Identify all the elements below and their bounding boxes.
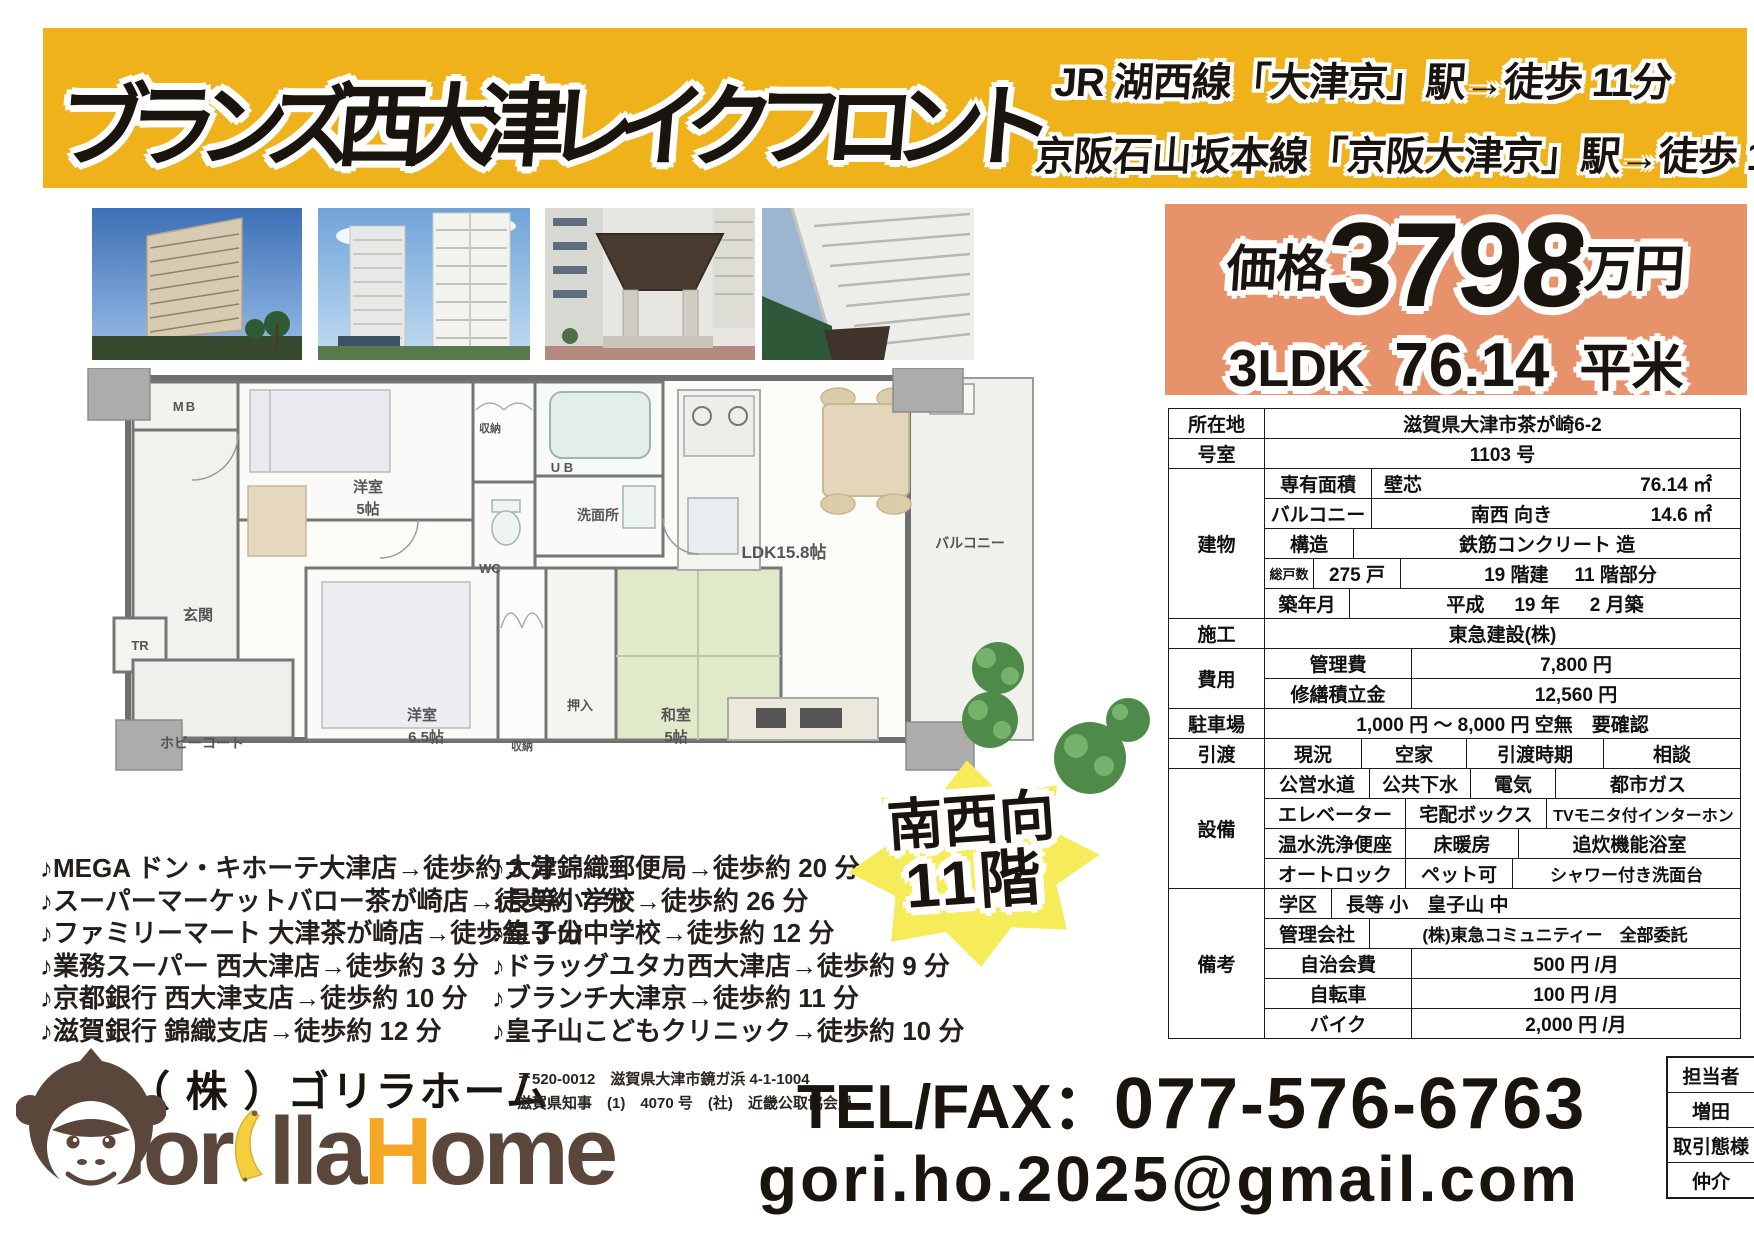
room-label-ub: U B bbox=[551, 460, 573, 475]
built-era: 平成 bbox=[1446, 590, 1484, 617]
built-label: 築年月 bbox=[1265, 589, 1349, 618]
equipment-item: 温水洗浄便座 bbox=[1265, 829, 1405, 858]
equipment-item: 追炊機能浴室 bbox=[1518, 829, 1740, 858]
row-cost-label: 費用 bbox=[1169, 649, 1265, 709]
row-building-label: 建物 bbox=[1169, 469, 1265, 619]
total-units-label: 総戸数 bbox=[1265, 559, 1313, 588]
equipment-item: ペット可 bbox=[1405, 859, 1512, 888]
building-photo-1 bbox=[92, 208, 302, 360]
location-value: 滋賀県大津市茶が崎6-2 bbox=[1265, 409, 1741, 439]
flyer-page: ブランズ西大津レイクフロント JR 湖西線「大津京」駅→徒歩 11分 京阪石山坂… bbox=[0, 0, 1754, 1241]
bicycle-fee-label: 自転車 bbox=[1265, 979, 1411, 1008]
building-photo-4 bbox=[762, 208, 974, 360]
balcony-label: バルコニー bbox=[1265, 499, 1371, 528]
header-banner: ブランズ西大津レイクフロント JR 湖西線「大津京」駅→徒歩 11分 京阪石山坂… bbox=[43, 28, 1747, 188]
wordmark-h: H bbox=[363, 1098, 428, 1205]
room-label-washroom: 洗面所 bbox=[577, 507, 619, 523]
room-label-oshiire: 押入 bbox=[567, 698, 593, 713]
access-line-keihan: 京阪石山坂本線「京阪大津京」駅→徒歩 14分 bbox=[1033, 124, 1754, 182]
price-amount: 3798 bbox=[1323, 206, 1588, 324]
management-company-label: 管理会社 bbox=[1265, 919, 1369, 948]
handover-time-value: 相談 bbox=[1603, 739, 1740, 768]
nearby-item: ♪皇子山こどもクリニック→徒歩約 10 分 bbox=[492, 1015, 964, 1048]
floor-plan: MB 洋室 5帖 収納 U B 洗面所 WC 玄関 TR ホビーコート 洋室 6… bbox=[78, 368, 1150, 798]
room-label-wc: WC bbox=[479, 561, 501, 576]
direction-badge: 南西向 11階 bbox=[841, 751, 1107, 975]
room-label-tr: TR bbox=[131, 638, 149, 653]
total-units-value: 275 戸 bbox=[1313, 559, 1400, 588]
constructor-value: 東急建設(株) bbox=[1265, 619, 1741, 649]
equipment-item: オートロック bbox=[1265, 859, 1405, 888]
row-equipment-label: 設備 bbox=[1169, 769, 1265, 889]
management-company-value: (株)東急コミュニティー 全部委託 bbox=[1369, 919, 1740, 948]
condition-label: 現況 bbox=[1265, 739, 1361, 768]
balcony-direction: 南西 向き bbox=[1371, 499, 1651, 528]
room-label-bedroom1: 洋室 bbox=[353, 478, 383, 496]
table-row: 引渡 現況 空家 引渡時期 相談 bbox=[1169, 739, 1741, 769]
postal-address: 〒520-0012 滋賀県大津市鏡ガ浜 4-1-1004 bbox=[517, 1068, 810, 1089]
table-row: 設備 公営水道 公共下水 電気 都市ガス bbox=[1169, 769, 1741, 799]
room-label-hobby: ホビーコート bbox=[160, 735, 244, 751]
floors-value: 19 階建 bbox=[1484, 560, 1548, 587]
equipment-item: 宅配ボックス bbox=[1405, 799, 1546, 828]
association-fee-label: 自治会費 bbox=[1265, 949, 1411, 978]
wordmark-ome: ome bbox=[429, 1098, 614, 1205]
wordmark-lla: lla bbox=[269, 1098, 364, 1205]
equipment-item: 公営水道 bbox=[1265, 769, 1369, 798]
area-kind: 壁芯 bbox=[1371, 469, 1422, 498]
management-fee-value: 7,800 円 bbox=[1411, 649, 1740, 678]
deal-type-value: 仲介 bbox=[1668, 1162, 1754, 1197]
association-fee-value: 500 円 /月 bbox=[1411, 949, 1740, 978]
deal-type-label: 取引態様 bbox=[1668, 1127, 1754, 1162]
room-label-bedroom2: 洋室 bbox=[407, 706, 437, 724]
email-address: gori.ho.2025@gmail.com bbox=[758, 1142, 1580, 1216]
table-row: 備考 学区 長等 小 皇子山 中 bbox=[1169, 889, 1741, 919]
table-row: 号室 1103 号 bbox=[1169, 439, 1741, 469]
room-label-bedroom2-size: 6.5帖 bbox=[408, 728, 444, 746]
room-label-washitsu: 和室 bbox=[661, 706, 691, 724]
room-label-closet2: 収納 bbox=[511, 739, 533, 753]
repair-fund-label: 修繕積立金 bbox=[1265, 679, 1411, 708]
table-row: 施工 東急建設(株) bbox=[1169, 619, 1741, 649]
equipment-item: 床暖房 bbox=[1405, 829, 1518, 858]
gorilla-logo-icon bbox=[16, 1044, 166, 1214]
row-handover-label: 引渡 bbox=[1169, 739, 1265, 769]
area-value: 76.14 bbox=[1394, 330, 1549, 401]
balcony-area-value: 14.6 ㎡ bbox=[1651, 499, 1740, 528]
banana-icon bbox=[233, 1098, 269, 1194]
area-unit: 平米 bbox=[1579, 326, 1683, 401]
equipment-item: 都市ガス bbox=[1555, 769, 1740, 798]
school-district-value: 長等 小 皇子山 中 bbox=[1331, 889, 1740, 918]
table-row: 費用 管理費 7,800 円 bbox=[1169, 649, 1741, 679]
structure-label: 構造 bbox=[1265, 529, 1353, 558]
built-month: 2 月築 bbox=[1590, 590, 1644, 617]
built-year: 19 年 bbox=[1514, 590, 1559, 617]
page-title: ブランズ西大津レイクフロント bbox=[53, 54, 1041, 184]
condition-value: 空家 bbox=[1361, 739, 1466, 768]
equipment-item: エレベーター bbox=[1265, 799, 1405, 828]
price-banner: 価格 3798 万円 3LDK 76.14 平米 bbox=[1165, 204, 1747, 395]
staff-table: 担当者 増田 取引態様 仲介 bbox=[1666, 1056, 1754, 1199]
floor-part-value: 11 階部分 bbox=[1575, 560, 1657, 587]
room-label-mb: MB bbox=[173, 399, 197, 414]
staff-label: 担当者 bbox=[1668, 1058, 1754, 1092]
row-constructor-label: 施工 bbox=[1169, 619, 1265, 649]
telfax-label: TEL/FAX： bbox=[797, 1073, 1114, 1142]
parking-value: 1,000 円 ～ 8,000 円 空無 要確認 bbox=[1265, 709, 1741, 739]
handover-time-label: 引渡時期 bbox=[1466, 739, 1603, 768]
nearby-item: ♪ブランチ大津京→徒歩約 11 分 bbox=[492, 982, 964, 1015]
exclusive-area-value: 76.14 ㎡ bbox=[1640, 469, 1740, 498]
management-fee-label: 管理費 bbox=[1265, 649, 1411, 678]
room-label-entrance: 玄関 bbox=[183, 606, 213, 624]
access-line-jr: JR 湖西線「大津京」駅→徒歩 11分 bbox=[1053, 50, 1674, 108]
table-row: 駐車場 1,000 円 ～ 8,000 円 空無 要確認 bbox=[1169, 709, 1741, 739]
room-label-bedroom1-size: 5帖 bbox=[356, 500, 379, 518]
building-photo-2 bbox=[318, 208, 530, 360]
staff-name: 増田 bbox=[1668, 1092, 1754, 1127]
telfax-number: 077-576-6763 bbox=[1114, 1064, 1586, 1144]
row-parking-label: 駐車場 bbox=[1169, 709, 1265, 739]
table-row: 建物 専有面積 壁芯 76.14 ㎡ bbox=[1169, 469, 1741, 499]
row-notes-label: 備考 bbox=[1169, 889, 1265, 1039]
room-label-balcony: バルコニー bbox=[935, 535, 1005, 551]
details-table: 所在地 滋賀県大津市茶が崎6-2 号室 1103 号 建物 専有面積 壁芯 76… bbox=[1168, 408, 1741, 1039]
price-unit: 万円 bbox=[1583, 229, 1688, 301]
layout-label: 3LDK bbox=[1229, 339, 1365, 399]
equipment-item: 電気 bbox=[1470, 769, 1555, 798]
building-photo-3 bbox=[545, 208, 755, 360]
area-label: 専有面積 bbox=[1265, 469, 1371, 498]
telfax-line: TEL/FAX：077-576-6763 bbox=[797, 1056, 1586, 1146]
row-location-label: 所在地 bbox=[1169, 409, 1265, 439]
equipment-item: 公共下水 bbox=[1369, 769, 1470, 798]
motorbike-fee-value: 2,000 円 /月 bbox=[1411, 1009, 1740, 1038]
structure-value: 鉄筋コンクリート 造 bbox=[1353, 529, 1740, 558]
room-label-closet1: 収納 bbox=[479, 421, 501, 435]
school-district-label: 学区 bbox=[1265, 889, 1331, 918]
room-label-ldk: LDK15.8帖 bbox=[741, 542, 826, 562]
table-row: 所在地 滋賀県大津市茶が崎6-2 bbox=[1169, 409, 1741, 439]
price-label: 価格 bbox=[1224, 229, 1329, 301]
row-room-label: 号室 bbox=[1169, 439, 1265, 469]
equipment-item: シャワー付き洗面台 bbox=[1512, 859, 1740, 888]
bicycle-fee-value: 100 円 /月 bbox=[1411, 979, 1740, 1008]
equipment-item: TVモニタ付インターホン bbox=[1546, 799, 1740, 828]
motorbike-fee-label: バイク bbox=[1265, 1009, 1411, 1038]
room-label-washitsu-size: 5帖 bbox=[664, 728, 687, 746]
room-number-value: 1103 号 bbox=[1265, 439, 1741, 469]
repair-fund-value: 12,560 円 bbox=[1411, 679, 1740, 708]
